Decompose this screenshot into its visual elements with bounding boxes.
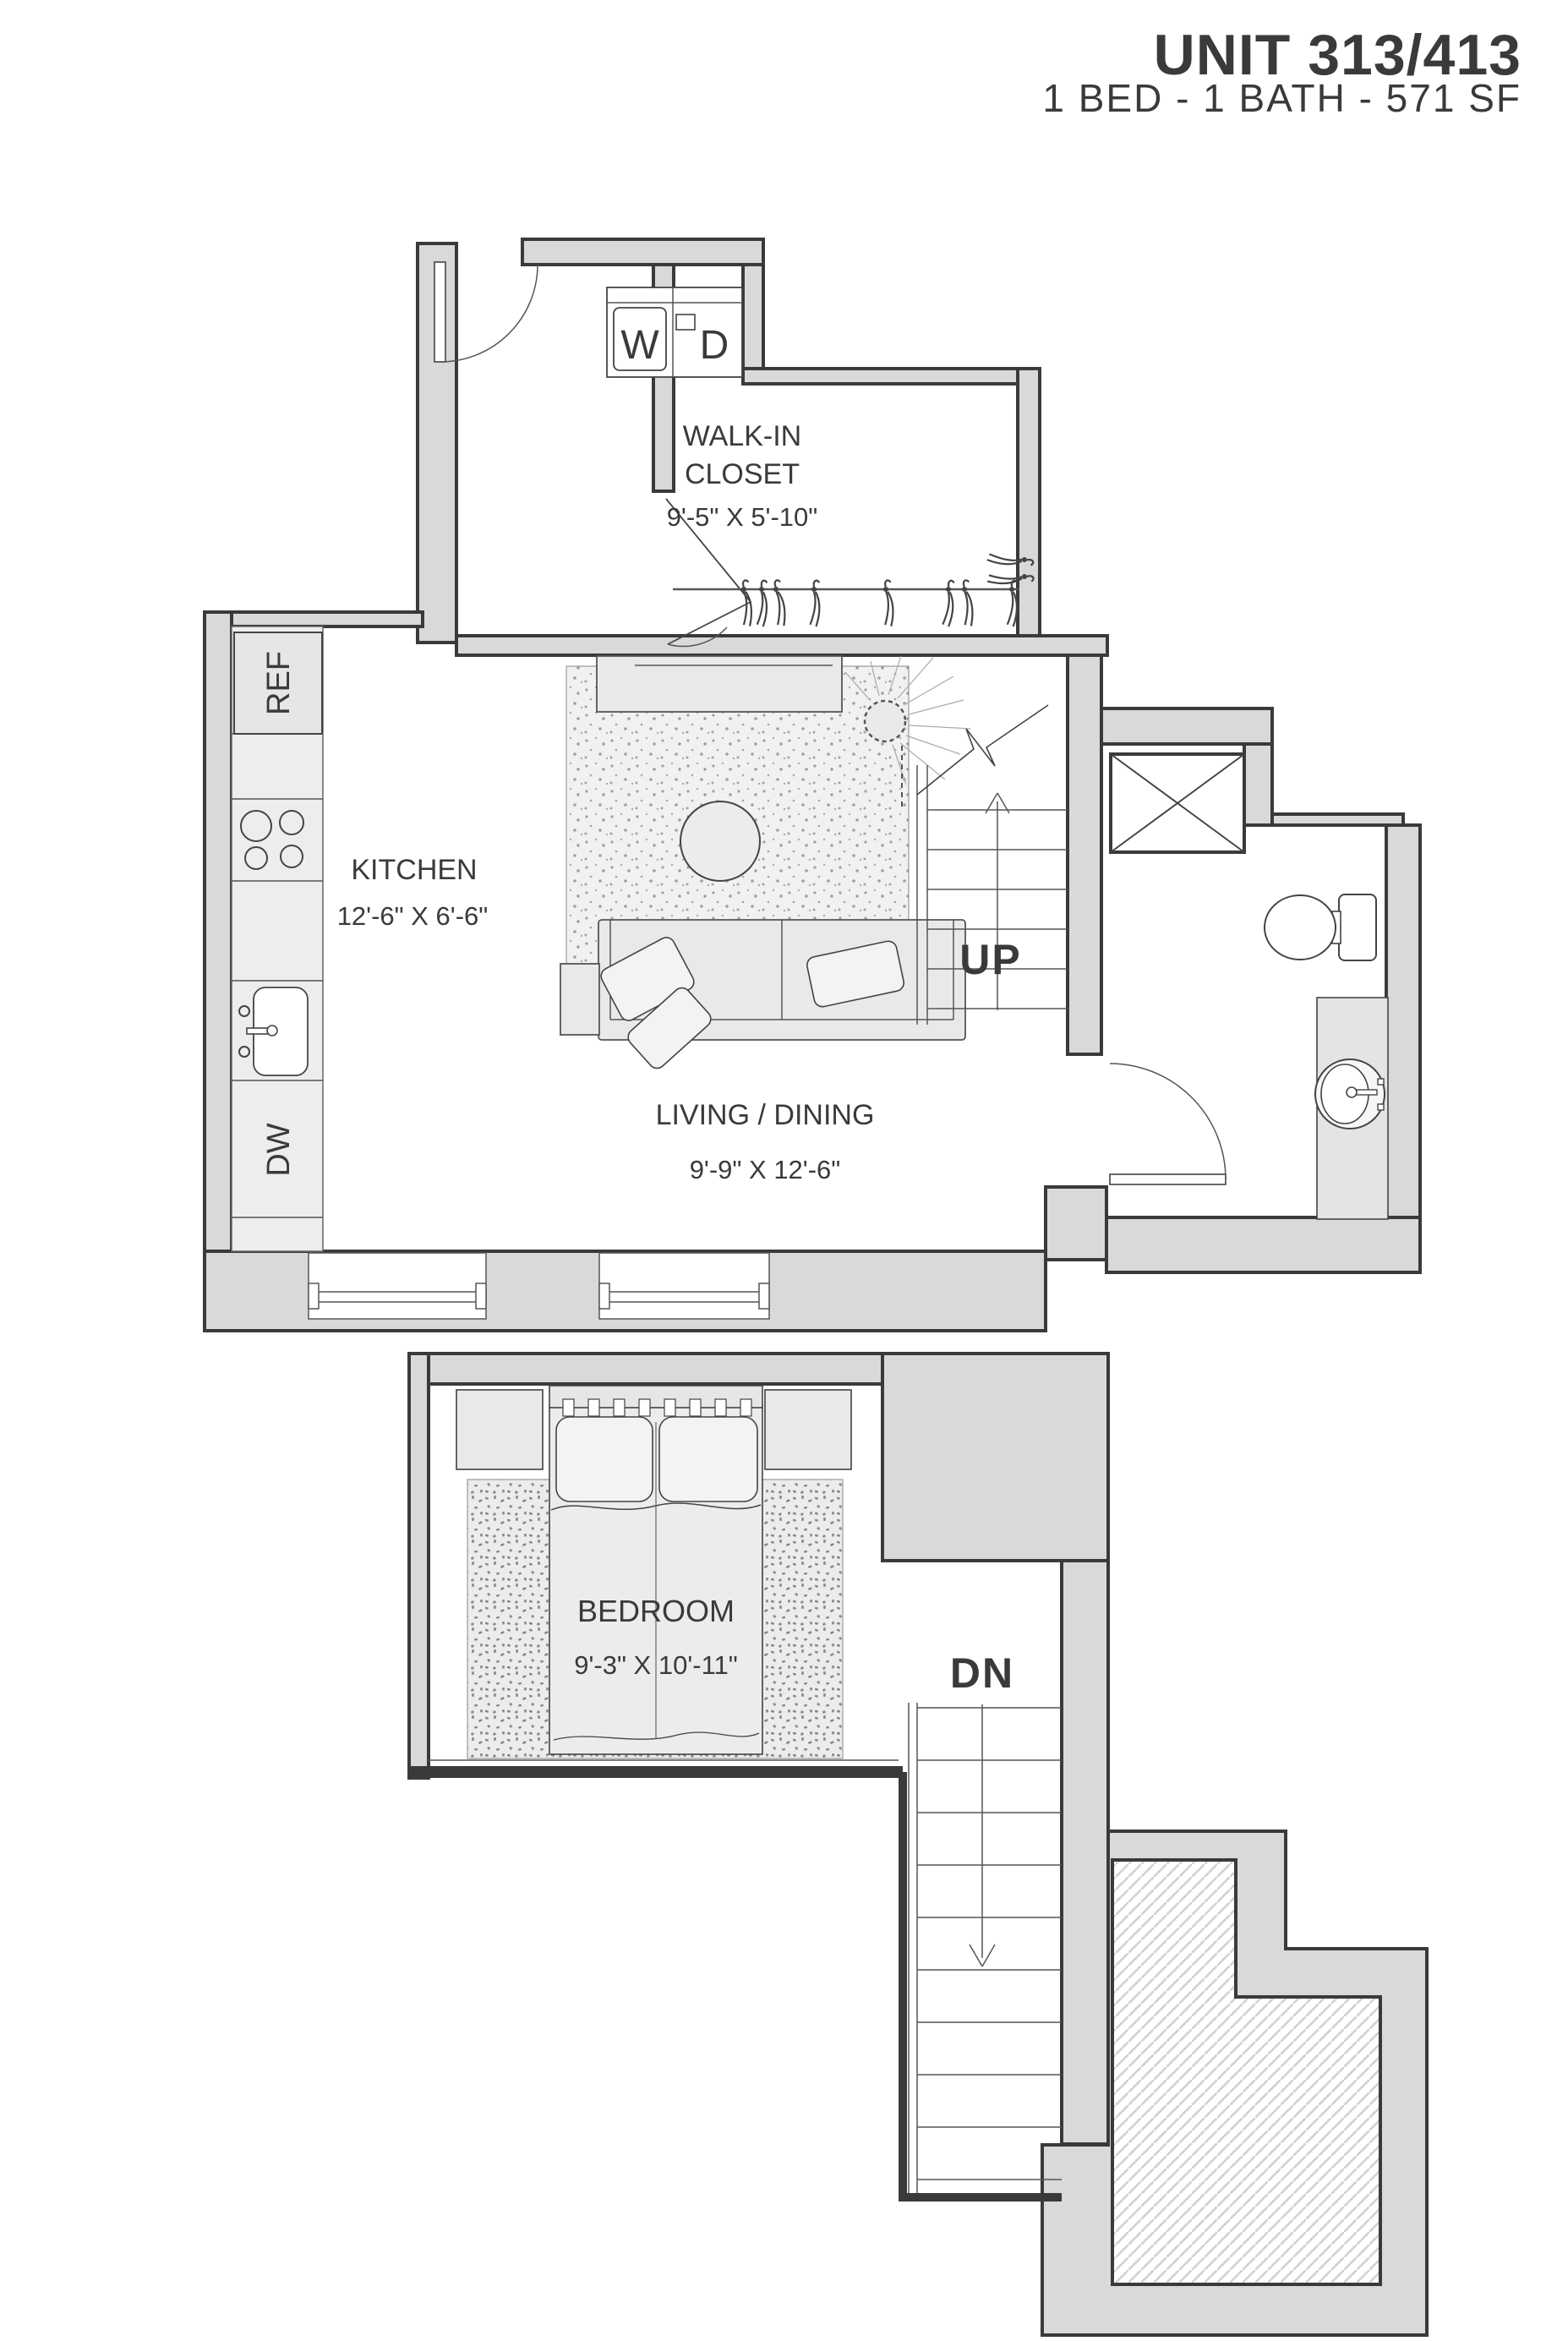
hanger-icon [757, 580, 768, 626]
kitchen-counter: REF DW [232, 626, 323, 1251]
bathroom-door [1110, 1064, 1226, 1184]
label-closet-dims: 9'-5" X 5'-10" [667, 502, 818, 532]
hanger-icon [740, 580, 752, 626]
label-washer: W [620, 323, 659, 368]
side-table [560, 964, 599, 1035]
nightstand [456, 1390, 543, 1469]
stairs-down: DN [909, 1649, 1062, 2193]
unit-specs: 1 BED - 1 BATH - 571 SF [1042, 76, 1522, 120]
label-bedroom: BEDROOM [577, 1594, 735, 1628]
upper-floor-plan: W D [205, 239, 1420, 1331]
toilet [1265, 894, 1376, 960]
pillow [659, 1417, 757, 1501]
label-closet: CLOSET [685, 458, 800, 490]
dishwasher: DW [261, 1123, 297, 1176]
coffee-table [680, 801, 760, 881]
bed: BEDROOM 9'-3" X 10'-11" [549, 1386, 762, 1754]
credenza [597, 656, 842, 712]
hanger-icon [773, 580, 787, 626]
pillow [556, 1417, 653, 1501]
window [599, 1253, 769, 1319]
label-kitchen: KITCHEN [351, 854, 477, 886]
shaft-x-box [1111, 754, 1244, 852]
hanger-icon [810, 580, 820, 626]
label-living-dims: 9'-9" X 12'-6" [690, 1155, 841, 1184]
hanger-icon [882, 580, 893, 626]
hanger-icon [942, 580, 955, 626]
sofa [598, 920, 965, 1072]
hanger-icon [961, 580, 974, 626]
refrigerator: REF [234, 632, 322, 734]
label-stairs-up: UP [959, 936, 1021, 983]
floor-plan-page: UNIT 313/413 1 BED - 1 BATH - 571 SF [0, 0, 1568, 2341]
label-walk-in: WALK-IN [683, 420, 801, 452]
vanity-sink [1315, 998, 1388, 1219]
label-dishwasher: DW [261, 1123, 297, 1176]
label-stairs-down: DN [950, 1649, 1014, 1697]
label-dryer: D [700, 323, 729, 368]
closet-rod [673, 554, 1034, 626]
washer-dryer: W D [607, 287, 742, 377]
window [309, 1253, 486, 1319]
label-fridge: REF [261, 651, 297, 715]
label-kitchen-dims: 12'-6" X 6'-6" [337, 901, 489, 931]
label-living-dining: LIVING / DINING [656, 1099, 875, 1131]
label-bedroom-dims: 9'-3" X 10'-11" [574, 1650, 738, 1680]
lower-floor-plan: BEDROOM 9'-3" X 10'-11" DN [409, 1354, 1427, 2335]
nightstand [765, 1390, 851, 1469]
